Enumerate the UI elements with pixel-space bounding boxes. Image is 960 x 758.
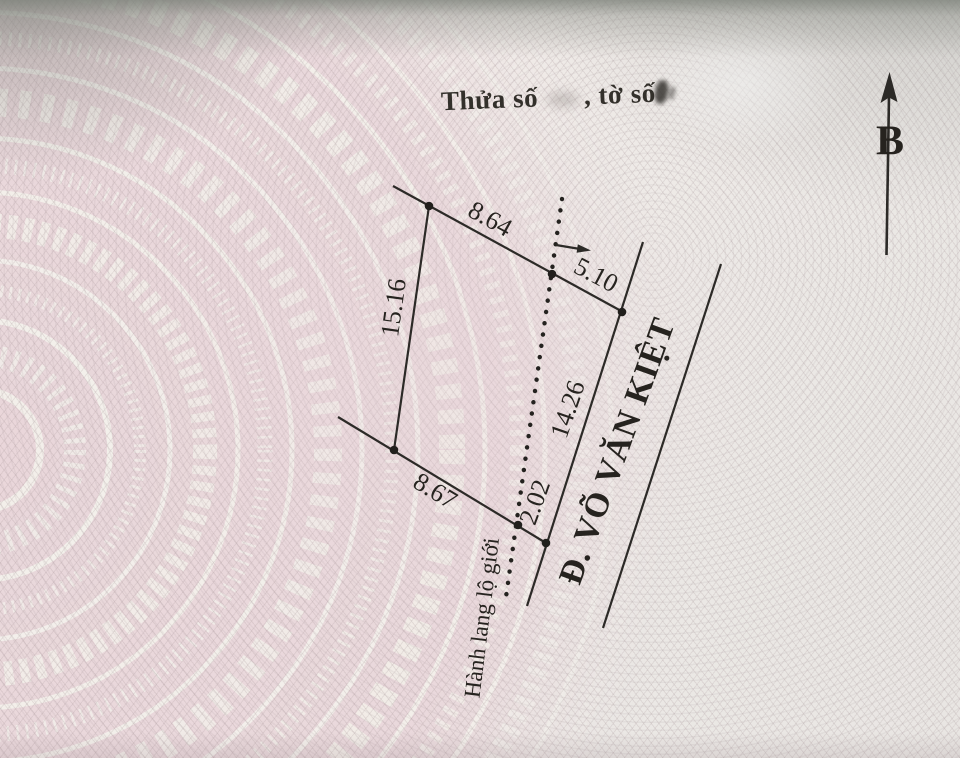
vertex-dot [425,202,434,211]
vertex-dot [618,308,627,317]
corridor-direction-arrow [556,244,591,253]
north-label: B [876,119,904,165]
dimension-bottom-right: 2.02 [513,476,556,529]
street-name-label: Đ. VÕ VĂN KIỆT [551,312,683,589]
parcel-number-label: Thửa số [440,82,538,116]
dimension-road-frontage: 14.26 [544,377,590,442]
dimension-bottom-left: 8.67 [408,467,462,515]
vertex-dot [548,270,557,279]
dimension-top-left: 8.64 [463,195,517,242]
vertex-dot [390,446,399,455]
dimension-top-right: 5.10 [569,251,623,298]
dimension-left-edge: 15.16 [375,277,412,339]
land-certificate-photo: B 8.64 5.10 15.16 8.67 2.02 14.26 Đ. VÕ … [0,0,960,758]
sheet-number-label: , tờ số [583,78,656,111]
north-arrow: B [876,72,904,255]
road-corridor-dotted-line [506,199,562,597]
erased-parcel-number-smudge [547,92,579,107]
vertex-dot [542,539,551,548]
road-corridor-label: Hành lang lộ giới [460,536,504,699]
